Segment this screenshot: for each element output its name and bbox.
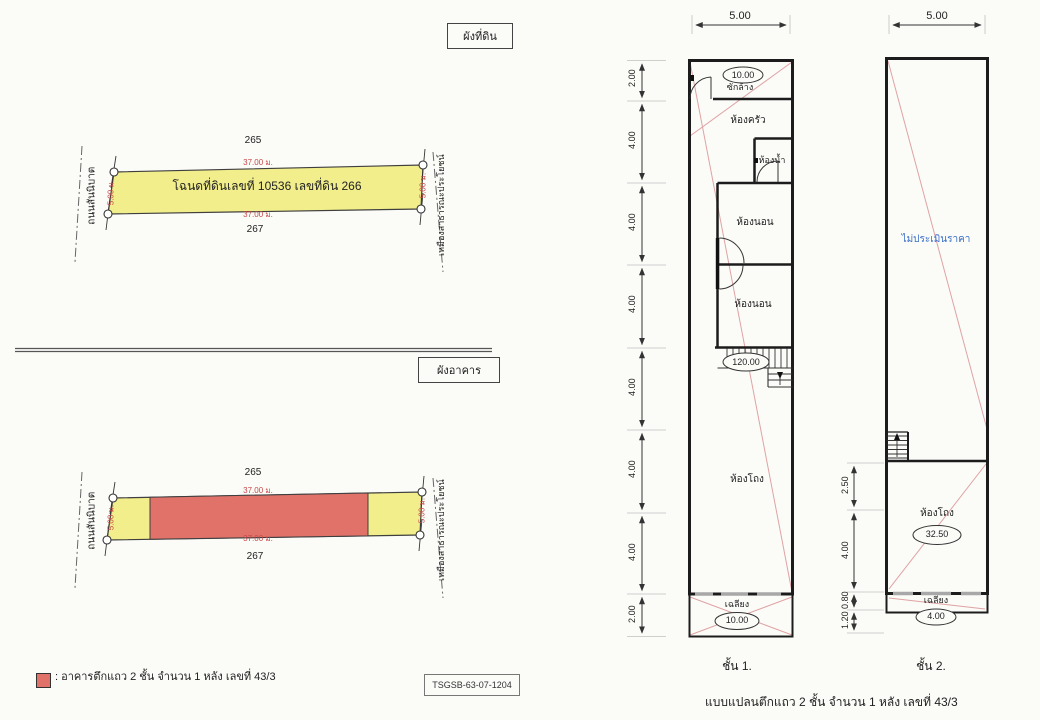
floor1-caption: ชั้น 1.	[707, 660, 767, 674]
floor1-room-bed1: ห้องนอน	[715, 217, 795, 229]
canal-name-label: เหมืองสาธารณะประโยชน์	[436, 470, 446, 590]
parcel-south-label: 267	[235, 224, 275, 236]
side-dim-left: 5.00 ม.	[106, 175, 115, 211]
side-dim-right: 5.00 ม.	[417, 493, 426, 529]
floor1-room-kitchen: ห้องครัว	[700, 115, 796, 127]
floor1-room-wash: ซักล้าง	[700, 82, 780, 92]
legend-text: : อาคารตึกแถว 2 ชั้น จำนวน 1 หลัง เลขที่…	[55, 671, 385, 684]
floor2-dim-0: 2.50	[840, 468, 850, 502]
width-dim-bottom: 37.00 ม.	[228, 210, 288, 219]
floor1-dim-2: 4.00	[627, 205, 637, 239]
floor1-dim-3: 4.00	[627, 287, 637, 321]
floor2-caption: ชั้น 2.	[901, 660, 961, 674]
reference-code: TSGSB-63-07-1204	[432, 680, 512, 690]
floor1-main-area: 120.00	[716, 357, 776, 367]
deed-label: โฉนดที่ดินเลขที่ 10536 เลขที่ดิน 266	[117, 180, 417, 194]
stair-direction-arrow	[894, 433, 900, 440]
stair-direction-arrow	[777, 372, 783, 379]
floor1-dim-5: 4.00	[627, 452, 637, 486]
legend-swatch	[36, 673, 51, 688]
road-boundary-line	[75, 146, 82, 262]
parcel-north-label: 265	[233, 135, 273, 147]
section-divider	[15, 349, 492, 352]
floor2-hall-area: 32.50	[907, 529, 967, 539]
building-plan-title: ผังอาคาร	[437, 361, 481, 379]
floor1-porch-area: 10.00	[707, 615, 767, 625]
sheet-footer-title: แบบแปลนตึกแถว 2 ชั้น จำนวน 1 หลัง เลขที่…	[705, 696, 1035, 710]
floor1-dim-6: 4.00	[627, 535, 637, 569]
side-dim-right: 5.00 ม.	[418, 168, 427, 204]
left-dimensions	[847, 463, 884, 633]
road-name-label: ถนนสันนิบาต	[86, 151, 98, 241]
appraisal-drawing-sheet: ผังที่ดิน ผังอาคาร 265 37.00 ม. โฉนดที่ด…	[0, 0, 1040, 720]
width-dim-bottom: 37.00 ม.	[228, 534, 288, 543]
floor2-dim-3: 1.20	[840, 603, 850, 637]
floor2-no-appraisal-note: ไม่ประเมินราคา	[876, 234, 996, 246]
floor1-dim-1: 4.00	[627, 123, 637, 157]
floor2-dim-1: 4.00	[840, 533, 850, 567]
road-boundary-line	[75, 472, 82, 588]
floor1-dim-0: 2.00	[627, 61, 637, 95]
reference-code-box: TSGSB-63-07-1204	[424, 674, 520, 696]
floor2-top-dim: 5.00	[907, 10, 967, 23]
road-name-label: ถนนสันนิบาต	[86, 476, 98, 566]
floor1-drawing	[627, 15, 793, 637]
drawing-layer	[0, 0, 1040, 720]
floor2-porch-area: 4.00	[906, 611, 966, 621]
floor1-dim-7: 2.00	[627, 597, 637, 631]
canal-name-label: เหมืองสาธารณะประโยชน์	[436, 145, 446, 265]
land-plan-title-box: ผังที่ดิน	[447, 23, 513, 49]
floor2-drawing	[847, 15, 988, 633]
floor1-room-bath: ห้องน้ำ	[748, 155, 796, 165]
building-plan-title-box: ผังอาคาร	[418, 357, 500, 383]
floor1-room-hall: ห้องโถง	[699, 474, 795, 486]
land-plan-title: ผังที่ดิน	[463, 27, 497, 45]
floor1-top-dim: 5.00	[710, 10, 770, 23]
width-dim-top: 37.00 ม.	[228, 158, 288, 167]
parcel-south-label: 267	[235, 551, 275, 563]
floor1-room-porch: เฉลียง	[697, 599, 777, 609]
floor1-dim-4: 4.00	[627, 370, 637, 404]
width-dim-top: 37.00 ม.	[228, 486, 288, 495]
floor2-room-hall: ห้องโถง	[886, 508, 988, 520]
side-dim-left: 5.00 ม.	[106, 500, 115, 536]
parcel-north-label: 265	[233, 467, 273, 479]
building-footprint	[150, 493, 368, 539]
floor1-wash-area: 10.00	[713, 70, 773, 80]
floor1-room-bed2: ห้องนอน	[713, 299, 793, 311]
floor2-room-porch: เฉลียง	[896, 595, 976, 605]
